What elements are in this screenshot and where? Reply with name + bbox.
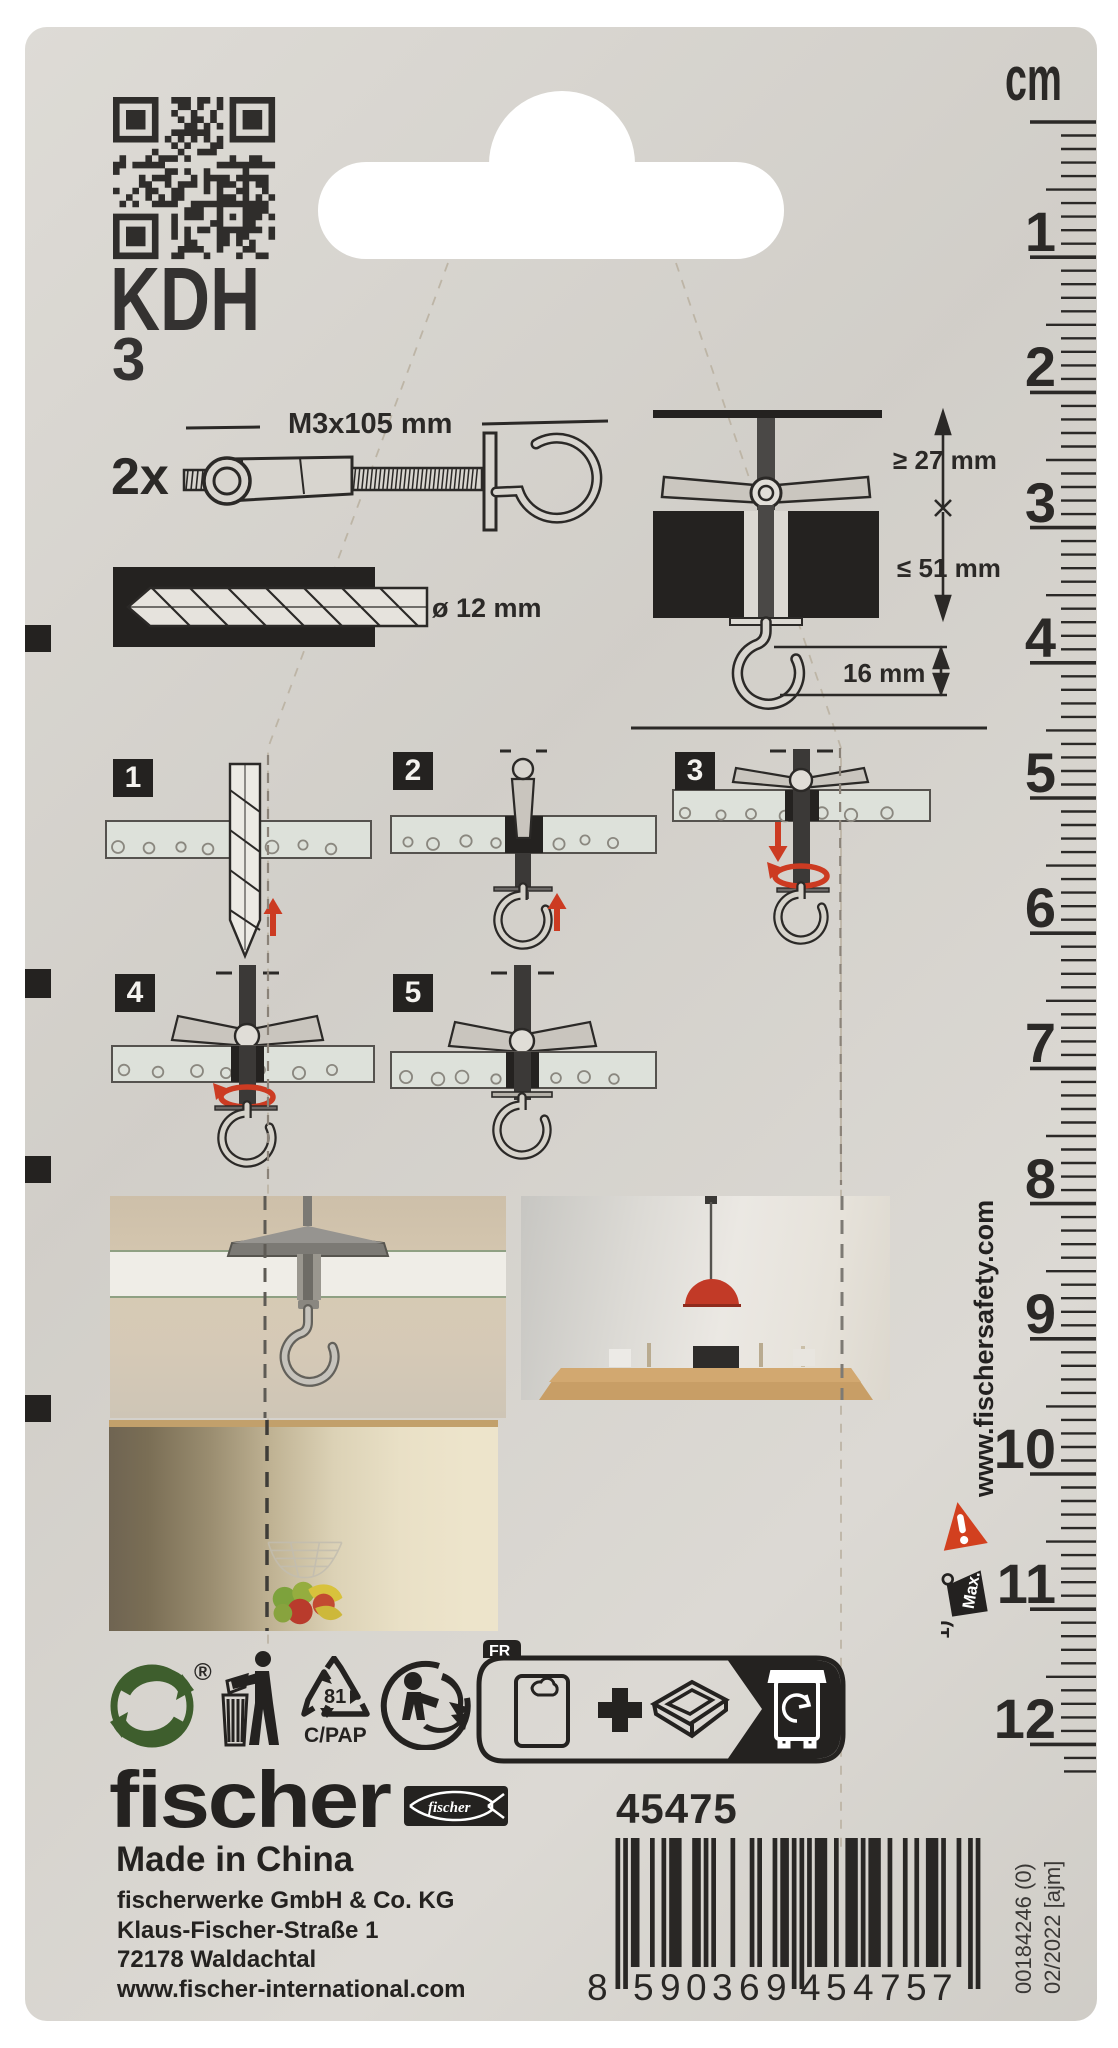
svg-text:8: 8	[587, 1967, 608, 2008]
svg-text:7: 7	[1025, 1011, 1056, 1074]
svg-text:1): 1)	[941, 1620, 954, 1639]
svg-text:7: 7	[880, 1967, 901, 2008]
svg-text:1: 1	[1025, 200, 1056, 263]
svg-text:C/PAP: C/PAP	[304, 1724, 367, 1747]
svg-text:5: 5	[1025, 741, 1056, 804]
svg-text:cm: cm	[1005, 50, 1062, 114]
svg-text:6: 6	[1025, 876, 1056, 939]
svg-text:3: 3	[1025, 471, 1056, 534]
svg-text:7: 7	[932, 1967, 953, 2008]
svg-text:5: 5	[633, 1967, 654, 2008]
svg-text:4: 4	[1025, 606, 1056, 669]
svg-text:10: 10	[994, 1417, 1056, 1480]
svg-text:8: 8	[1025, 1147, 1056, 1210]
svg-text:fischer: fischer	[428, 1800, 471, 1816]
svg-text:12: 12	[994, 1687, 1056, 1750]
svg-text:00184246 (0): 00184246 (0)	[1011, 1863, 1036, 1994]
svg-text:5: 5	[906, 1967, 927, 2008]
svg-text:11: 11	[997, 1552, 1056, 1615]
svg-text:81: 81	[324, 1686, 346, 1708]
svg-text:3: 3	[712, 1967, 733, 2008]
svg-text:02/2022 [ajm]: 02/2022 [ajm]	[1040, 1861, 1065, 1994]
svg-text:9: 9	[660, 1967, 681, 2008]
svg-text:0: 0	[686, 1967, 707, 2008]
svg-text:®: ®	[194, 1660, 212, 1686]
svg-text:2: 2	[1025, 335, 1056, 398]
svg-text:9: 9	[1025, 1282, 1056, 1345]
svg-text:5: 5	[826, 1967, 847, 2008]
svg-text:4: 4	[800, 1967, 821, 2008]
svg-text:9: 9	[766, 1967, 787, 2008]
svg-text:4: 4	[853, 1967, 874, 2008]
svg-text:6: 6	[739, 1967, 760, 2008]
